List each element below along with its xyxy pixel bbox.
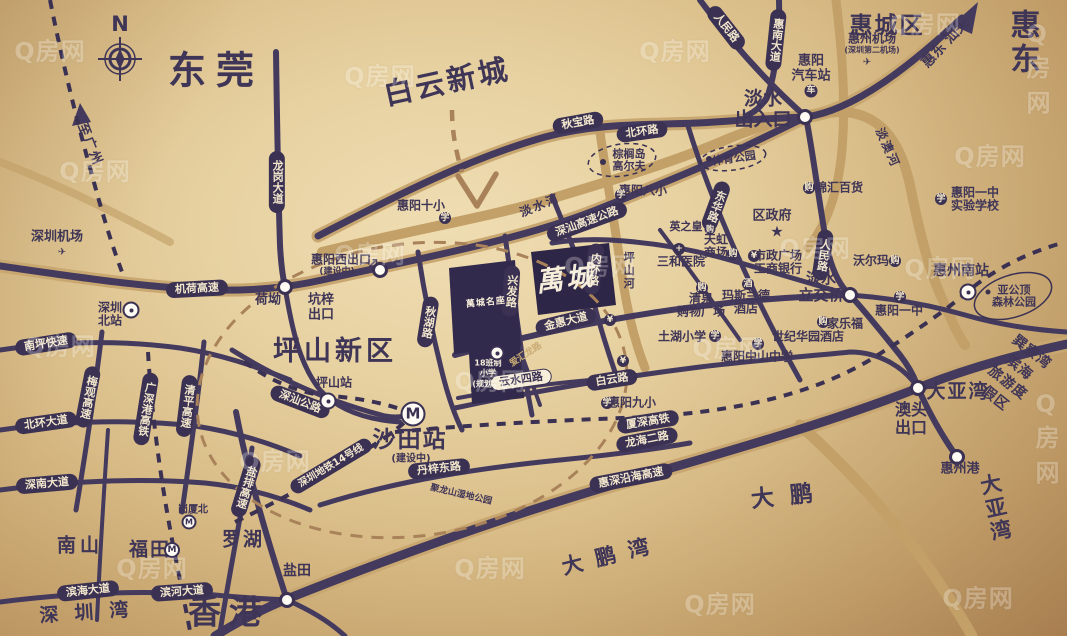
school-huiyang-10: 惠阳十小: [397, 199, 445, 212]
compass-rose-icon: [97, 36, 143, 82]
watermark: Q房网: [692, 329, 763, 364]
poi-palm-island-golf: 棕榈岛 高尔夫: [613, 149, 646, 174]
school-icon: 学: [894, 291, 906, 303]
watermark: Q房网: [1036, 390, 1061, 488]
school-icon: 学: [935, 193, 947, 205]
park-dot-icon: [986, 290, 991, 295]
watermark: Q房网: [344, 57, 415, 92]
poi-qingquan-mall: 清泉 购物广场: [677, 293, 725, 320]
watermark: Q房网: [954, 137, 1025, 172]
poi-yingzhihuang: 英之皇: [670, 221, 703, 233]
area-luohu: 罗湖: [222, 529, 264, 550]
area-nanshan: 南山: [57, 535, 103, 556]
mall-icon: 购: [705, 224, 716, 235]
interchange-danshui: 淡水 立交桥: [798, 270, 843, 304]
school-icon: [490, 346, 505, 361]
watermark: Q房网: [889, 5, 960, 40]
watermark: Q房网: [116, 549, 187, 584]
area-yantian: 盐田: [283, 564, 311, 580]
station-shatian-note: (建设中): [391, 453, 430, 464]
watermark: Q房网: [59, 152, 130, 187]
watermark: Q房网: [684, 585, 755, 620]
park-dot-icon: [706, 156, 712, 162]
mall-icon: 购: [889, 255, 901, 267]
location-map: N 东莞白云新城惠城区惠东惠东 汕头坪山新区香港南山福田罗湖盐田深圳湾大鹏湾大鹏…: [0, 0, 1067, 636]
watermark: Q房网: [454, 549, 525, 584]
golf-dot-icon: [600, 159, 606, 165]
road-longgang-avenue: 龙岗大道: [269, 151, 285, 213]
exit-kengzi: 坑梓 出口: [308, 293, 334, 322]
exit-aotou: 澳头 出口: [895, 401, 927, 437]
hotel-icon: 酒: [742, 278, 754, 290]
station-shatian: 沙田站: [373, 428, 448, 454]
junction-dayawan: [910, 380, 926, 396]
bus-icon: 车: [805, 85, 818, 98]
node-heao: 荷坳: [255, 294, 281, 309]
mall-icon: 购: [696, 282, 708, 294]
watermark: Q房网: [239, 442, 310, 477]
school-huiyang-1: 惠阳一中: [875, 304, 923, 317]
mall-icon: 购: [727, 248, 739, 260]
train-icon: [320, 393, 337, 410]
junction-danshui-entrance: [797, 109, 813, 125]
school-icon: 学: [439, 212, 451, 224]
watermark: Q房网: [942, 579, 1013, 614]
station-gangxiabei: 岗厦北: [178, 504, 208, 515]
mall-icon: 购: [817, 316, 829, 328]
airport-huizhou-note: (深圳第二机场): [844, 47, 899, 56]
poi-walmart: 沃尔玛: [853, 254, 889, 267]
district-pingshan: 坪山新区: [273, 337, 397, 367]
exit-danshui: 淡水 出入口: [734, 89, 791, 132]
train-icon: [123, 302, 140, 319]
compass-north-label: N: [96, 12, 144, 36]
watermark: Q房网: [904, 249, 975, 284]
watermark: Q房网: [454, 362, 525, 397]
mall-icon: 购: [803, 182, 815, 194]
junction-yantian: [279, 592, 295, 608]
poi-jinhui-department: 锦汇百货: [815, 181, 863, 194]
bank-icon: ¥: [617, 355, 629, 367]
airport-shenzhen: 深圳机场: [31, 231, 83, 246]
port-huizhou: 惠州港: [940, 463, 979, 478]
station-shenzhen-north: 深圳 北站: [98, 302, 122, 329]
watermark: Q房网: [639, 32, 710, 67]
park-yagongding: 亚公顶 森林公园: [992, 285, 1036, 310]
poi-rainbow-mall: 天虹 商场: [704, 234, 728, 261]
city-dongguan: 东莞: [168, 50, 264, 93]
junction-danshui-interchange: [842, 287, 858, 303]
watermark: Q房网: [334, 235, 405, 270]
bank-icon: ¥: [748, 250, 760, 262]
school-huiyang-1-experimental: 惠阳一中 实验学校: [951, 187, 999, 214]
poi-maslande-hotel: 玛斯兰德 酒店: [722, 290, 770, 317]
poi-century-garden-hotel: 世纪华园酒店: [772, 330, 844, 343]
school-icon: 学: [615, 189, 627, 201]
poi-sanhe-hospital: 三和医院: [657, 255, 705, 268]
watermark: Q房网: [24, 327, 95, 362]
train-icon: [960, 284, 977, 301]
metro-icon: M: [401, 402, 426, 427]
school-huiyang-9: 惠阳九小: [608, 396, 656, 409]
watermark: Q房网: [1027, 20, 1054, 118]
watermark: Q房网: [14, 32, 85, 67]
hospital-icon: +: [673, 243, 685, 255]
station-huiyang-bus: 惠阳 汽车站: [791, 54, 830, 83]
metro-icon: M: [182, 515, 197, 530]
station-pingshan: 坪山站: [316, 376, 352, 389]
city-hongkong: 香港: [188, 595, 270, 632]
watermark: Q房网: [779, 229, 850, 264]
plane-icon: ✈: [860, 56, 874, 70]
watermark: Q房网: [564, 247, 635, 282]
bank-icon: ¥: [604, 314, 616, 326]
school-icon: 学: [601, 397, 613, 409]
plane-icon: ✈: [55, 246, 69, 260]
compass: N: [96, 12, 144, 96]
